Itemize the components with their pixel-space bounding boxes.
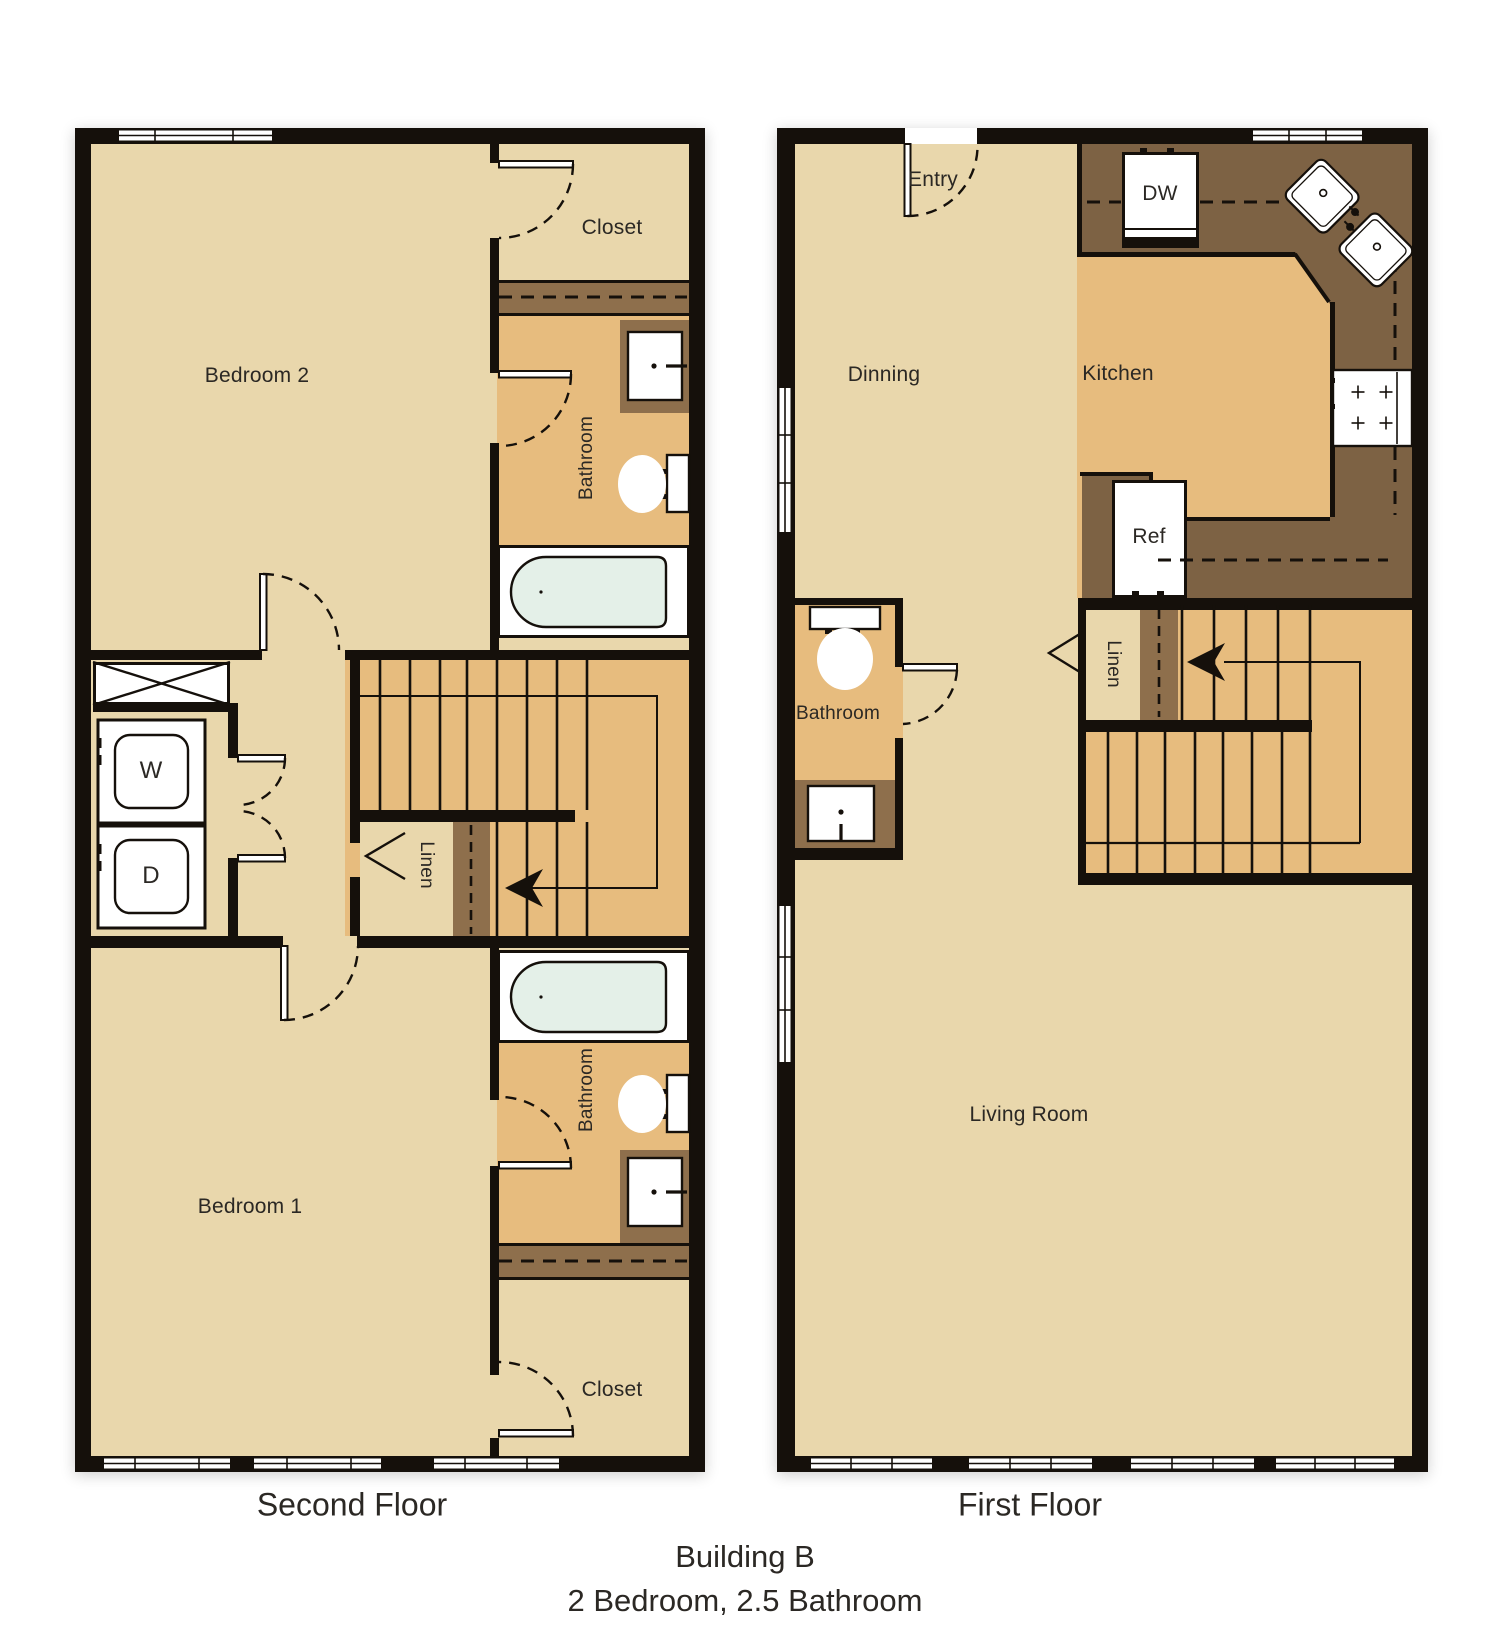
washer-label: W (140, 757, 163, 785)
toilet-icon (618, 455, 689, 513)
refrigerator-detail (1132, 591, 1164, 596)
toilet-icon (618, 1075, 689, 1133)
room-label-bedroom2: Bedroom 2 (205, 364, 310, 388)
room-label-entry: Entry (908, 168, 958, 192)
bathtub-basin (511, 557, 666, 1032)
sink-icon (628, 1158, 687, 1226)
sink-icon (628, 332, 687, 400)
room-label-bathroom-top: Bathroom (576, 416, 598, 500)
chase-x-icon (93, 662, 230, 705)
unit-subtitle: 2 Bedroom, 2.5 Bathroom (568, 1583, 923, 1619)
room-label-linen: Linen (1102, 640, 1124, 688)
counter-corner (1295, 252, 1330, 304)
second-floor-plan: Bedroom 2 Closet Bathroom Linen W D Bedr… (75, 128, 705, 1472)
linen-door-chevron (1049, 632, 1083, 674)
floor-plan-page: Bedroom 2 Closet Bathroom Linen W D Bedr… (0, 0, 1500, 1646)
stair-railing (358, 696, 657, 907)
first-floor-details (777, 128, 1428, 1472)
second-floor-caption: Second Floor (257, 1487, 447, 1524)
room-label-kitchen: Kitchen (1082, 362, 1153, 386)
second-floor-details (75, 128, 705, 1472)
bathroom-door (903, 664, 957, 724)
first-floor-plan: Entry Dinning Kitchen DW Ref Bathroom Li… (777, 128, 1428, 1472)
room-label-bathroom: Bathroom (796, 703, 880, 725)
building-title: Building B (675, 1539, 815, 1575)
room-label-linen: Linen (415, 841, 437, 889)
cabinet-dash (1087, 202, 1395, 717)
room-label-living: Living Room (970, 1103, 1089, 1127)
room-label-dining: Dinning (848, 363, 921, 387)
linen-door-chevron (366, 833, 405, 879)
dryer-label: D (142, 862, 160, 890)
kitchen-sink-icon (1283, 157, 1415, 289)
refrigerator-label: Ref (1132, 525, 1165, 549)
dishwasher-label: DW (1142, 182, 1177, 206)
room-label-bedroom1: Bedroom 1 (198, 1195, 303, 1219)
stove-icon (1330, 370, 1412, 446)
sink-icon (808, 786, 874, 841)
stair-railing (1187, 643, 1360, 843)
door-swing-arc (238, 164, 573, 1436)
room-label-closet-top: Closet (582, 216, 643, 240)
stair-direction-arrow (1187, 643, 1225, 681)
first-floor-caption: First Floor (958, 1487, 1102, 1524)
room-label-closet-bottom: Closet (582, 1378, 643, 1402)
window-icon (118, 130, 273, 142)
room-label-bathroom-bottom: Bathroom (576, 1048, 598, 1132)
toilet-icon (810, 607, 880, 690)
window-icon (103, 1458, 560, 1470)
stair-treads (380, 660, 587, 936)
door-leaf (238, 161, 573, 1437)
